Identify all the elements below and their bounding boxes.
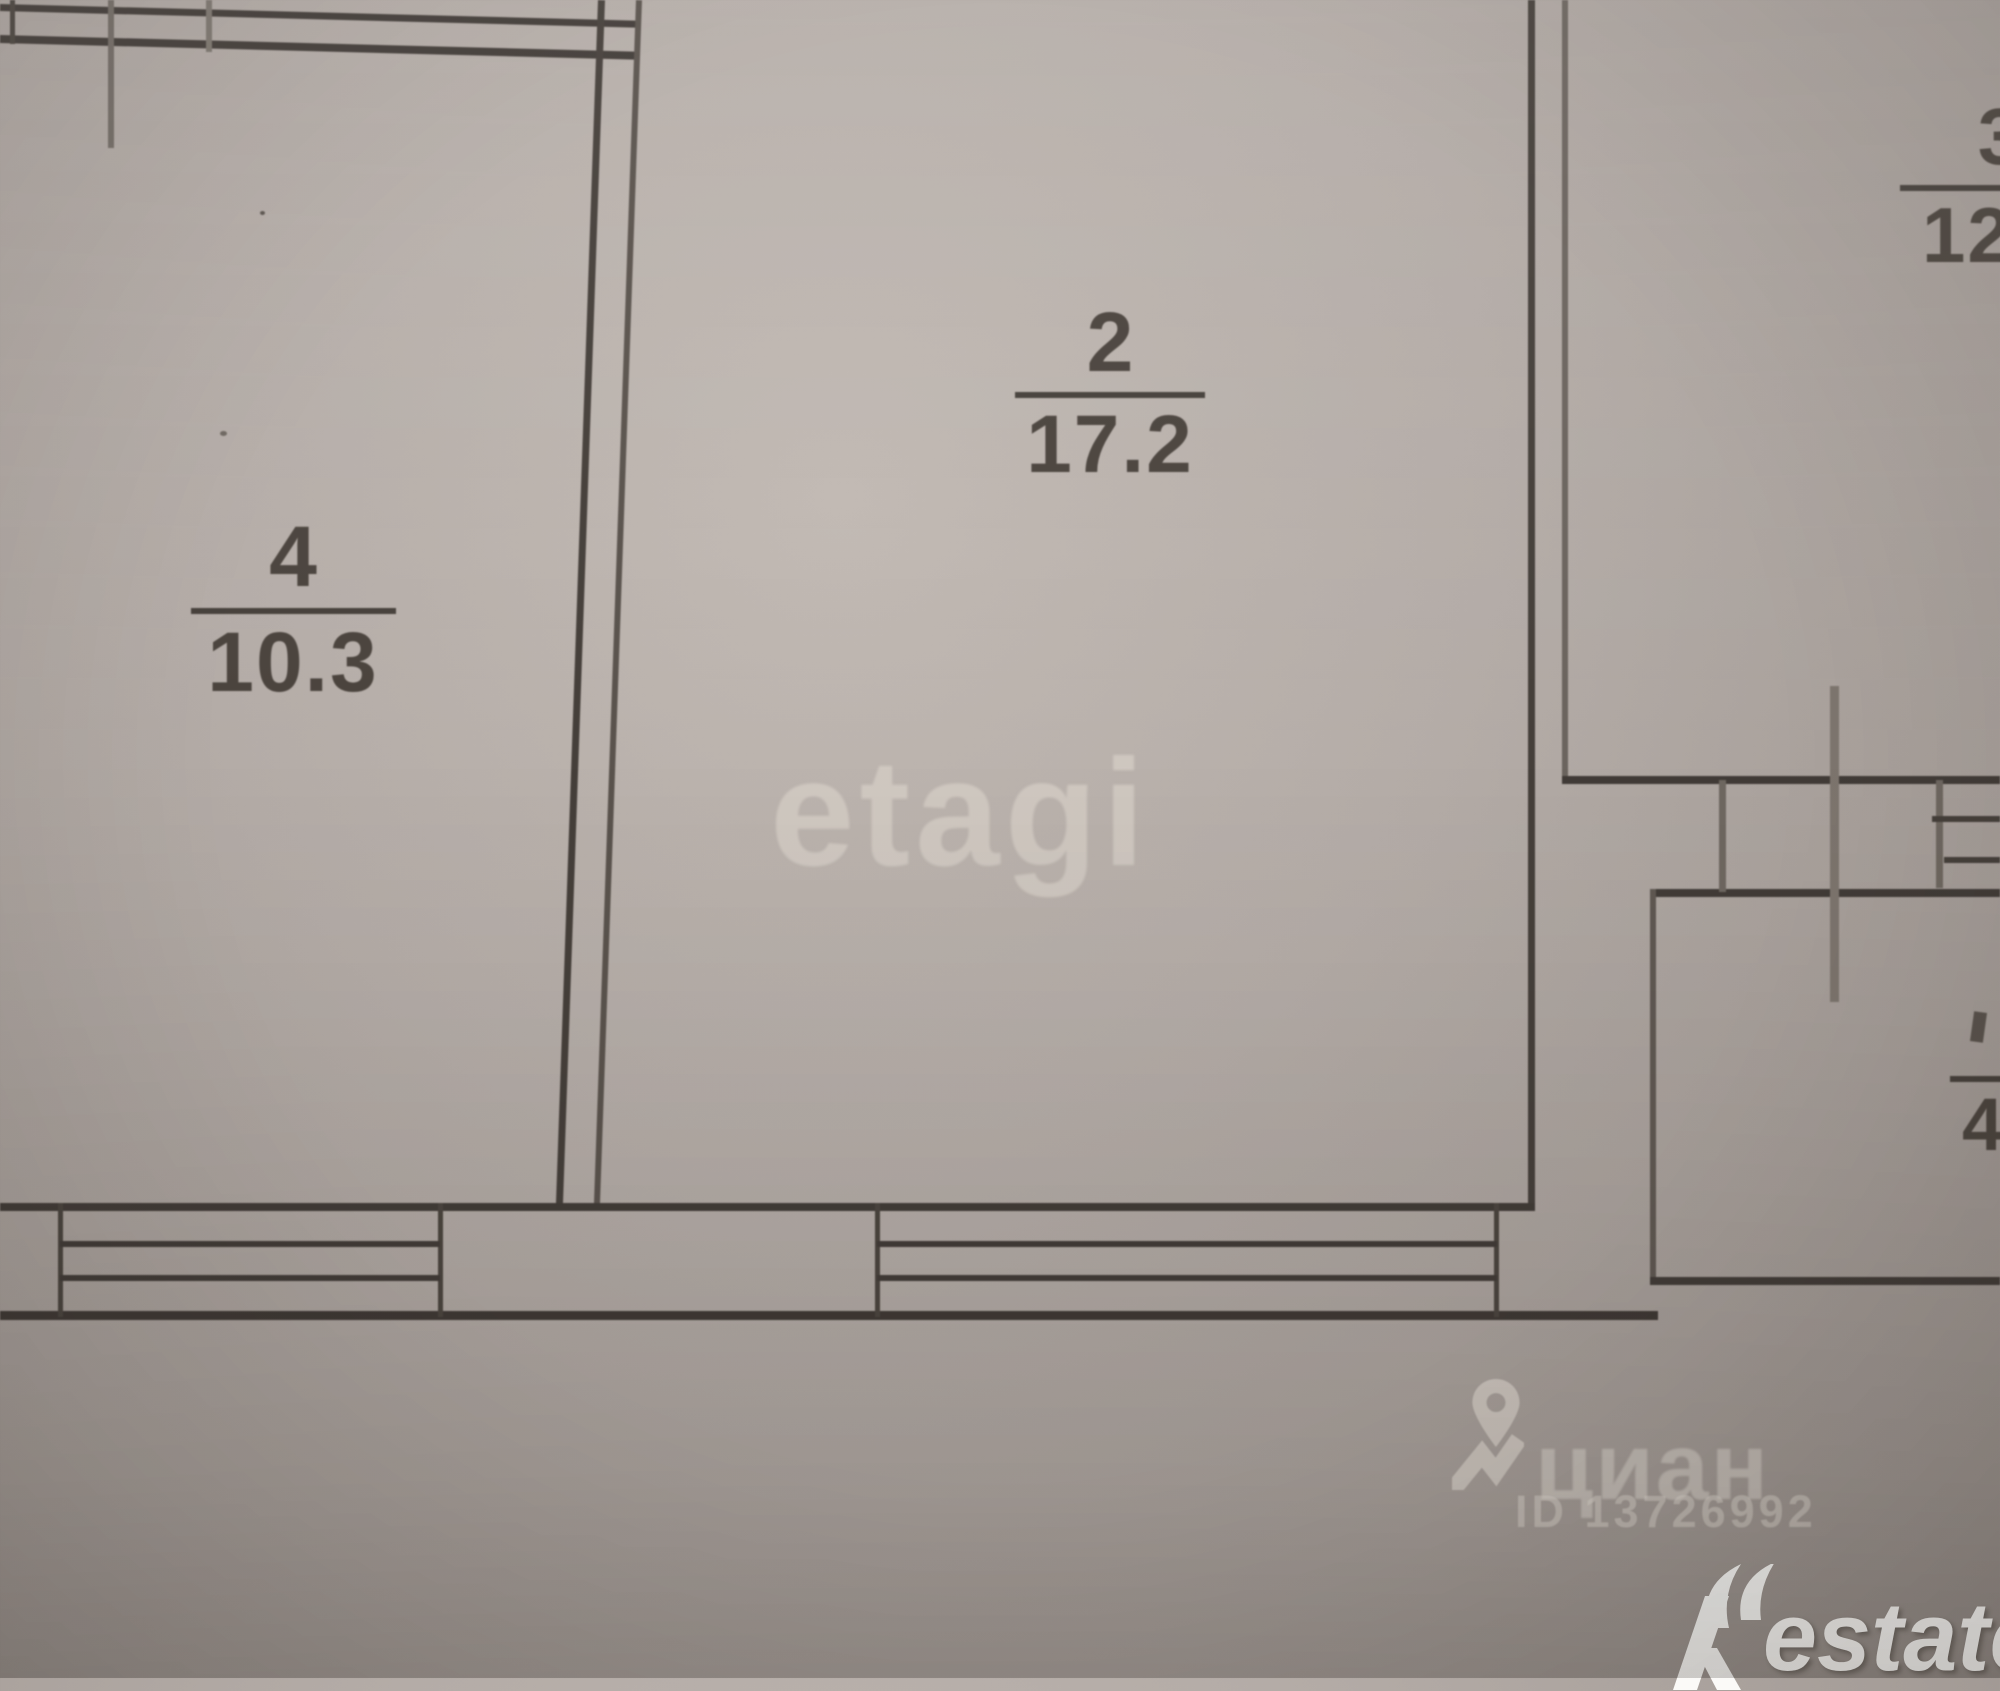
floorplan-photo: { "photo": { "kind": "apartment floor pl… xyxy=(0,0,2000,1678)
restate-r-mark-icon xyxy=(1645,1564,1777,1690)
watermarks: etagi циан ID 13726992 estate xyxy=(0,0,2000,1678)
etagi-watermark: etagi xyxy=(770,726,1150,901)
restate-watermark-text: estate xyxy=(1763,1588,2000,1685)
cian-id-watermark: ID 13726992 xyxy=(1515,1489,1817,1534)
cian-logo-mark-icon xyxy=(1452,1428,1524,1495)
